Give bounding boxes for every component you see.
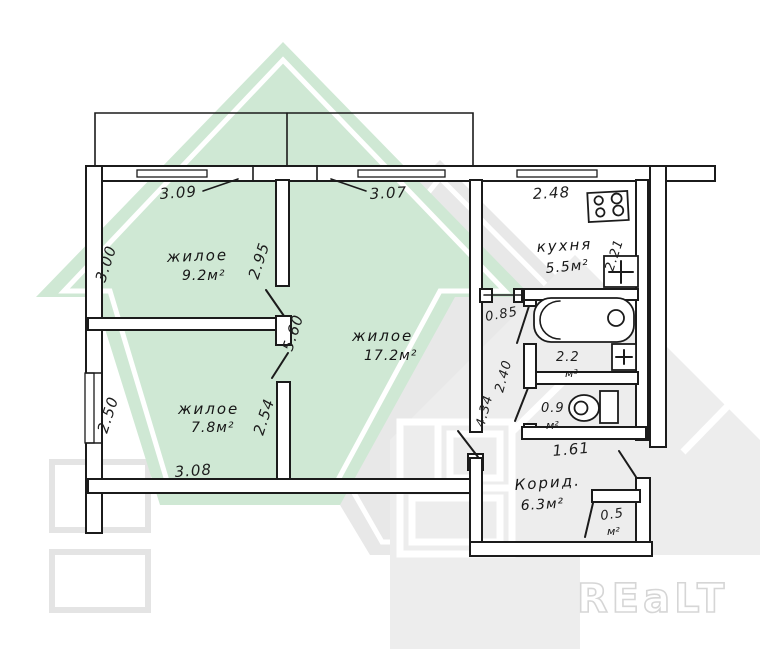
window-room7 xyxy=(85,373,94,443)
room7-area: 7.8м² xyxy=(191,420,234,436)
room17-area: 17.2м² xyxy=(364,348,417,364)
window-room17 xyxy=(358,170,445,177)
room17-label: жилое xyxy=(351,327,413,345)
dim-room7-width: 3.08 xyxy=(174,460,213,481)
closet-unit: м² xyxy=(607,525,620,538)
window-room9 xyxy=(137,170,207,177)
bathroom-unit: м² xyxy=(565,367,578,380)
room9-label: жилое xyxy=(166,246,229,266)
floor-plan-drawing: 3.09 3.07 2.48 3.00 2.95 5.60 2.50 2.54 … xyxy=(0,0,760,649)
toilet-unit: м² xyxy=(546,419,559,432)
room9-area: 9.2м² xyxy=(182,268,225,284)
brand-watermark-text: REaLT xyxy=(577,576,728,622)
corridor-area: 6.3м² xyxy=(520,496,564,514)
bathroom-area: 2.2 xyxy=(556,350,580,365)
washbasin-icon xyxy=(612,344,636,370)
stove-icon xyxy=(587,191,628,222)
toilet-area: 0.9 xyxy=(541,401,565,416)
dim-room17-window: 3.07 xyxy=(369,183,407,203)
dim-room9-window: 3.09 xyxy=(159,182,198,203)
bathtub-icon xyxy=(534,298,634,342)
room7-label: жилое xyxy=(177,400,239,418)
dim-toilet-width: 1.61 xyxy=(552,439,591,460)
window-kitchen xyxy=(517,170,597,177)
floor-plan-scan: 3.09 3.07 2.48 3.00 2.95 5.60 2.50 2.54 … xyxy=(0,0,760,649)
kitchen-label: кухня xyxy=(536,235,593,256)
dim-kitchen-window: 2.48 xyxy=(532,183,570,203)
